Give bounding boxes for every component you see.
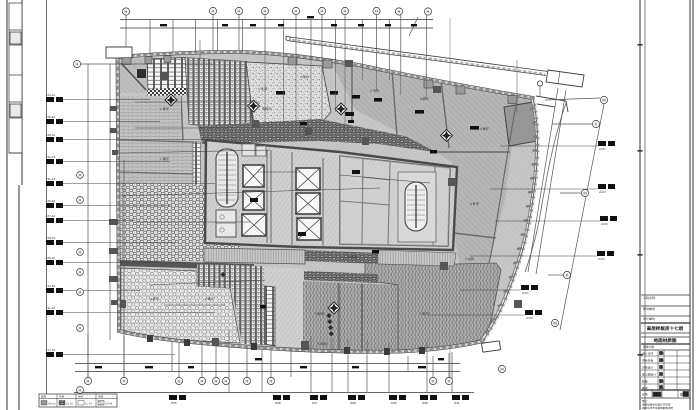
svg-text:F03-A2: F03-A2 xyxy=(46,133,56,137)
svg-text:F06-B2: F06-B2 xyxy=(46,199,56,203)
svg-text:H: H xyxy=(79,198,82,203)
svg-text:W-06: W-06 xyxy=(526,316,533,320)
svg-text:C31: C31 xyxy=(454,401,460,405)
svg-text:H: H xyxy=(79,270,82,275)
svg-text:设计主持: 设计主持 xyxy=(642,352,653,356)
svg-text:1 走道: 1 走道 xyxy=(258,87,268,91)
svg-text:电梯厅: 电梯厅 xyxy=(262,107,272,111)
svg-text:H: H xyxy=(270,379,273,384)
svg-text:H: H xyxy=(87,379,90,384)
svg-text:GR-01: GR-01 xyxy=(48,403,56,406)
svg-text:设计单位: 设计单位 xyxy=(643,317,655,321)
svg-text:F04-C1: F04-C1 xyxy=(46,155,56,159)
svg-text:F07-A4: F07-A4 xyxy=(46,214,56,218)
svg-text:F09-A5: F09-A5 xyxy=(46,256,56,260)
svg-text:M: M xyxy=(583,191,586,196)
svg-text:W-03: W-03 xyxy=(601,222,608,226)
svg-text:C28: C28 xyxy=(350,401,356,405)
svg-text:项目负责: 项目负责 xyxy=(642,359,653,363)
svg-text:W-01: W-01 xyxy=(599,147,606,151)
svg-text:2 书房: 2 书房 xyxy=(370,89,379,93)
svg-text:H: H xyxy=(375,9,378,14)
svg-text:3 卧室: 3 卧室 xyxy=(470,202,480,206)
svg-text:5 阳台: 5 阳台 xyxy=(318,342,327,346)
svg-text:5 卧室: 5 卧室 xyxy=(315,312,325,316)
svg-text:K: K xyxy=(595,122,598,127)
svg-text:H: H xyxy=(246,379,249,384)
svg-text:C29: C29 xyxy=(391,401,397,405)
svg-text:地砖: 地砖 xyxy=(78,395,84,399)
svg-text:M: M xyxy=(553,321,556,326)
svg-text:CP-04: CP-04 xyxy=(105,403,113,406)
svg-text:H: H xyxy=(212,9,215,14)
svg-text:建设单位: 建设单位 xyxy=(643,307,655,311)
svg-text:石材: 石材 xyxy=(59,395,65,399)
svg-text:2 阳台: 2 阳台 xyxy=(300,75,309,79)
svg-text:3 客厅: 3 客厅 xyxy=(420,97,430,101)
svg-text:W-02: W-02 xyxy=(599,190,606,194)
svg-text:H: H xyxy=(76,62,79,67)
svg-text:C30: C30 xyxy=(422,401,428,405)
svg-text:H: H xyxy=(215,379,218,384)
svg-text:F12-C3: F12-C3 xyxy=(46,348,56,352)
svg-text:K: K xyxy=(566,273,569,278)
svg-text:本图纸版权归设计方所有: 本图纸版权归设计方所有 xyxy=(642,403,671,407)
svg-text:H: H xyxy=(79,326,82,331)
svg-text:H: H xyxy=(321,9,324,14)
svg-text:F08-C2: F08-C2 xyxy=(46,236,56,240)
svg-text:地面材质图: 地面材质图 xyxy=(654,338,677,343)
svg-text:比例: 比例 xyxy=(642,393,648,397)
svg-text:N: N xyxy=(178,379,181,384)
svg-text:图纸内容: 图纸内容 xyxy=(643,345,654,349)
svg-text:审核: 审核 xyxy=(642,386,648,390)
svg-text:F10-B3: F10-B3 xyxy=(46,284,56,288)
svg-text:1 餐厅: 1 餐厅 xyxy=(160,157,170,161)
svg-text:H: H xyxy=(427,9,430,14)
svg-text:H: H xyxy=(225,379,228,384)
svg-text:C25: C25 xyxy=(171,401,177,405)
svg-text:未经许可不得复制翻版使用: 未经许可不得复制翻版使用 xyxy=(642,406,674,410)
svg-text:施工图设计: 施工图设计 xyxy=(642,373,656,377)
svg-text:H: H xyxy=(79,173,82,178)
svg-text:1 客厅: 1 客厅 xyxy=(160,107,170,111)
svg-text:H: H xyxy=(123,379,126,384)
svg-text:M: M xyxy=(602,98,605,103)
svg-text:ST-02: ST-02 xyxy=(66,403,73,406)
svg-text:5 客厅: 5 客厅 xyxy=(420,312,430,316)
svg-text:H: H xyxy=(432,379,435,384)
svg-text:W-05: W-05 xyxy=(522,291,529,295)
svg-text:F05-A3: F05-A3 xyxy=(46,177,56,181)
svg-text:M: M xyxy=(500,367,503,372)
svg-text:备注:: 备注: xyxy=(642,399,648,403)
svg-text:5 厨房: 5 厨房 xyxy=(348,255,357,259)
svg-text:H: H xyxy=(79,388,82,393)
svg-text:H: H xyxy=(125,9,128,14)
svg-text:3 餐厅: 3 餐厅 xyxy=(480,127,490,131)
svg-text:H: H xyxy=(344,9,347,14)
svg-text:4 餐厅: 4 餐厅 xyxy=(205,297,215,301)
svg-text:H: H xyxy=(295,9,298,14)
svg-text:地毯: 地毯 xyxy=(98,395,104,399)
svg-text:F02-B1: F02-B1 xyxy=(46,115,56,119)
svg-text:F11-A6: F11-A6 xyxy=(46,306,55,310)
svg-text:TL-03: TL-03 xyxy=(85,403,92,406)
svg-text:图例: 图例 xyxy=(41,395,47,399)
svg-text:H: H xyxy=(79,250,82,255)
svg-text:H: H xyxy=(238,9,241,14)
svg-text:H: H xyxy=(79,290,82,295)
svg-text:H: H xyxy=(264,9,267,14)
svg-text:工程名称: 工程名称 xyxy=(643,296,655,300)
svg-text:C26: C26 xyxy=(275,401,281,405)
svg-text:3 主卧: 3 主卧 xyxy=(465,257,475,261)
svg-text:H: H xyxy=(201,379,204,384)
svg-text:W-04: W-04 xyxy=(598,257,605,261)
svg-text:C27: C27 xyxy=(312,401,318,405)
svg-text:制图: 制图 xyxy=(642,380,648,384)
svg-text:4 客厅: 4 客厅 xyxy=(150,297,160,301)
svg-text:H: H xyxy=(448,379,451,384)
svg-text:F01-A1: F01-A1 xyxy=(46,93,56,97)
svg-text:H: H xyxy=(398,9,401,14)
svg-text:方案设计: 方案设计 xyxy=(642,366,653,370)
svg-text:高层样板房十七层: 高层样板房十七层 xyxy=(647,326,684,331)
